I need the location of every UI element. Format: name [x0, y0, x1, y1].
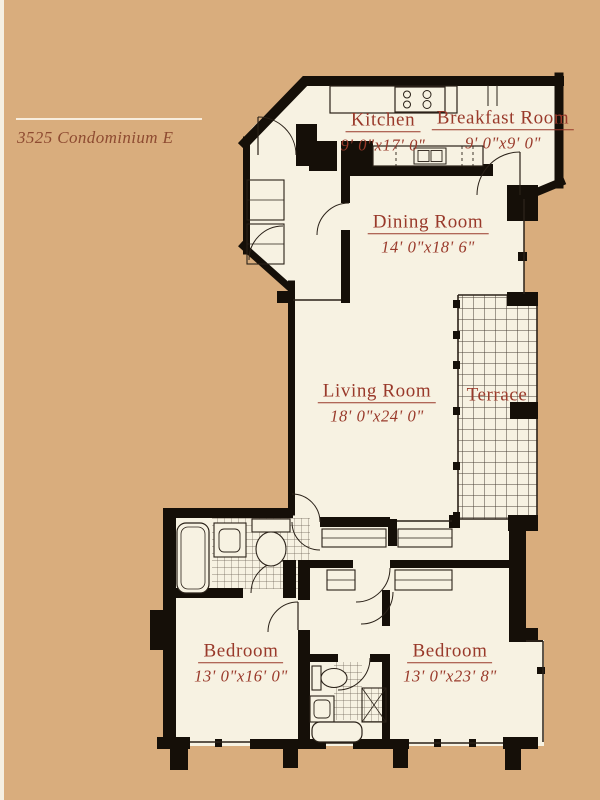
vanity-sink-icon: [214, 523, 246, 557]
room-name: Breakfast Room: [432, 108, 574, 130]
vanity-sink-icon: [310, 696, 334, 722]
room-dimensions: 18' 0"x24' 0": [318, 408, 436, 425]
room-dimensions: 14' 0"x18' 6": [368, 239, 489, 256]
room-name: Terrace: [462, 386, 533, 407]
room-dimensions: 9' 0"x9' 0": [432, 135, 574, 152]
room-label-kitchen: Kitchen 9' 0"x17' 0": [341, 110, 426, 154]
room-name: Bedroom: [199, 641, 284, 663]
room-label-bedroom-right: Bedroom 13' 0"x23' 8": [403, 641, 497, 685]
bathtub-icon: [312, 722, 362, 742]
room-label-breakfast: Breakfast Room 9' 0"x9' 0": [432, 108, 574, 152]
room-label-dining: Dining Room 14' 0"x18' 6": [368, 212, 489, 256]
room-label-terrace: Terrace: [462, 386, 533, 407]
room-dimensions: 9' 0"x17' 0": [341, 137, 426, 154]
bathtub-icon: [177, 523, 209, 593]
room-label-living: Living Room 18' 0"x24' 0": [318, 381, 436, 425]
room-name: Living Room: [318, 381, 436, 403]
room-name: Bedroom: [408, 641, 493, 663]
room-dimensions: 13' 0"x23' 8": [403, 668, 497, 685]
room-dimensions: 13' 0"x16' 0": [194, 668, 288, 685]
room-name: Dining Room: [368, 212, 489, 234]
scanned-floorplan-page: { "title": { "text": "3525 Condominium E…: [0, 0, 600, 800]
room-name: Kitchen: [346, 110, 420, 132]
room-label-bedroom-left: Bedroom 13' 0"x16' 0": [194, 641, 288, 685]
